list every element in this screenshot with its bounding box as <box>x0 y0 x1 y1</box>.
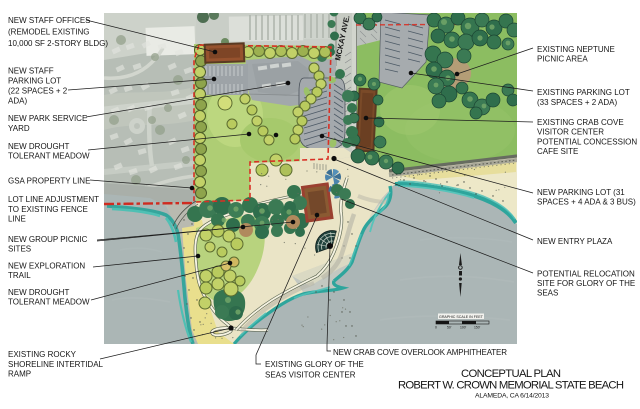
svg-text:NEW PARK SERVICE: NEW PARK SERVICE <box>8 114 87 123</box>
svg-text:TOLERANT MEADOW: TOLERANT MEADOW <box>8 152 90 161</box>
svg-text:(33 SPACES + 2 ADA): (33 SPACES + 2 ADA) <box>537 98 617 107</box>
svg-text:SITES: SITES <box>8 244 31 253</box>
svg-text:SPACES + 4 ADA & 3 BUS): SPACES + 4 ADA & 3 BUS) <box>537 198 636 207</box>
svg-text:GRAPHIC SCALE IN FEET: GRAPHIC SCALE IN FEET <box>439 315 484 319</box>
svg-text:NEW EXPLORATION: NEW EXPLORATION <box>8 262 85 271</box>
svg-text:PARKING LOT: PARKING LOT <box>8 77 61 86</box>
svg-text:SEAS: SEAS <box>537 289 558 298</box>
svg-text:SHORELINE INTERTIDAL: SHORELINE INTERTIDAL <box>8 360 104 369</box>
svg-text:CONCEPTUAL PLAN: CONCEPTUAL PLAN <box>461 368 561 380</box>
svg-text:SEAS VISITOR CENTER: SEAS VISITOR CENTER <box>265 371 356 380</box>
svg-text:EXISTING CRAB COVE: EXISTING CRAB COVE <box>537 118 624 127</box>
svg-text:NEW CRAB COVE OVERLOOK AMPHITH: NEW CRAB COVE OVERLOOK AMPHITHEATER <box>333 348 507 357</box>
svg-text:EXISTING GLORY OF THE: EXISTING GLORY OF THE <box>265 360 364 369</box>
svg-text:ALAMEDA, CA 6/14/2013: ALAMEDA, CA 6/14/2013 <box>475 393 549 400</box>
svg-text:NEW DROUGHT: NEW DROUGHT <box>8 142 69 151</box>
svg-text:NEW DROUGHT: NEW DROUGHT <box>8 288 69 297</box>
svg-text:CAFE SITE: CAFE SITE <box>537 147 578 156</box>
svg-text:SITE FOR GLORY OF THE: SITE FOR GLORY OF THE <box>537 279 635 288</box>
svg-text:RAMP: RAMP <box>8 370 31 379</box>
svg-text:NEW PARKING LOT (31: NEW PARKING LOT (31 <box>537 188 625 197</box>
svg-text:GSA PROPERTY LINE: GSA PROPERTY LINE <box>8 177 90 186</box>
svg-text:POTENTIAL RELOCATION: POTENTIAL RELOCATION <box>537 269 635 278</box>
svg-text:LINE: LINE <box>8 215 26 224</box>
svg-text:NEW GROUP PICNIC: NEW GROUP PICNIC <box>8 235 88 244</box>
svg-text:EXISTING NEPTUNE: EXISTING NEPTUNE <box>537 45 615 54</box>
svg-text:(22 SPACES + 2: (22 SPACES + 2 <box>8 87 68 96</box>
svg-text:VISITOR CENTER: VISITOR CENTER <box>537 128 604 137</box>
svg-text:150': 150' <box>474 326 481 330</box>
svg-text:10,000 SF 2-STORY BLDG): 10,000 SF 2-STORY BLDG) <box>8 39 108 48</box>
svg-text:0: 0 <box>435 326 437 330</box>
svg-text:EXISTING PARKING LOT: EXISTING PARKING LOT <box>537 88 630 97</box>
svg-text:PICNIC AREA: PICNIC AREA <box>537 55 588 64</box>
svg-text:ADA): ADA) <box>8 97 27 106</box>
svg-text:(REMODEL EXISTING: (REMODEL EXISTING <box>8 27 90 36</box>
svg-text:NEW STAFF OFFICES: NEW STAFF OFFICES <box>8 16 91 25</box>
svg-text:ROBERT W. CROWN MEMORIAL STATE: ROBERT W. CROWN MEMORIAL STATE BEACH <box>398 380 624 392</box>
svg-text:EXISTING ROCKY: EXISTING ROCKY <box>8 350 77 359</box>
svg-text:YARD: YARD <box>8 124 30 133</box>
svg-text:NEW ENTRY PLAZA: NEW ENTRY PLAZA <box>537 237 613 246</box>
svg-text:50': 50' <box>447 326 452 330</box>
svg-text:100': 100' <box>460 326 467 330</box>
svg-text:POTENTIAL CONCESSION: POTENTIAL CONCESSION <box>537 137 637 146</box>
svg-text:TOLERANT MEADOW: TOLERANT MEADOW <box>8 297 90 306</box>
svg-text:LOT LINE ADJUSTMENT: LOT LINE ADJUSTMENT <box>8 195 99 204</box>
svg-text:TRAIL: TRAIL <box>8 271 31 280</box>
svg-text:TO EXISTING FENCE: TO EXISTING FENCE <box>8 205 88 214</box>
svg-text:NEW STAFF: NEW STAFF <box>8 67 54 76</box>
